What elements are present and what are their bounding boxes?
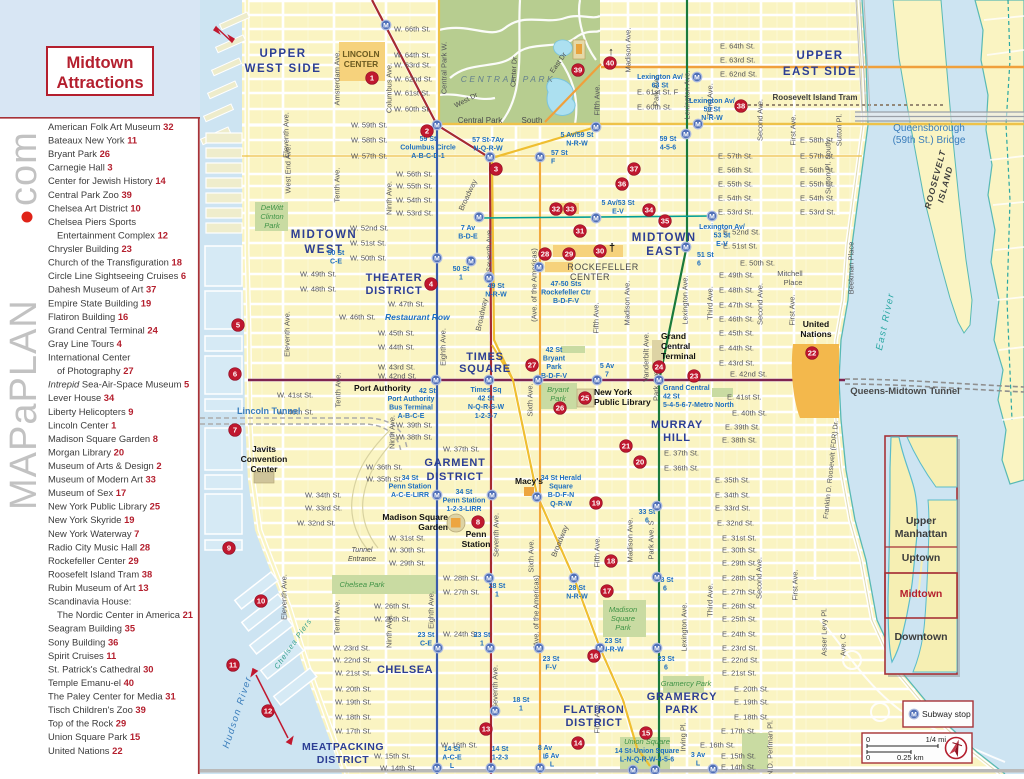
svg-text:Vanderbilt Ave.: Vanderbilt Ave. [642,332,651,382]
svg-text:Manhattan: Manhattan [895,528,948,540]
svg-text:1: 1 [495,592,499,599]
svg-text:E. 25th St.: E. 25th St. [722,615,757,624]
svg-text:Seventh Ave.: Seventh Ave. [485,228,494,272]
svg-text:14 St-Union Square: 14 St-Union Square [615,748,680,755]
svg-text:53 St: 53 St [714,233,731,240]
svg-text:Temple Emanu-el 40: Temple Emanu-el 40 [48,677,134,688]
svg-text:E. 21st St.: E. 21st St. [722,669,757,678]
svg-text:L: L [696,761,701,768]
svg-text:Queens-Midtown Tunnel: Queens-Midtown Tunnel [850,386,960,397]
svg-text:Lincoln Center 1: Lincoln Center 1 [48,419,116,430]
svg-text:Grand Central Terminal 24: Grand Central Terminal 24 [48,324,159,335]
svg-text:E. 30th St.: E. 30th St. [722,546,757,555]
svg-text:M: M [435,646,441,653]
svg-text:Ninth Ave.: Ninth Ave. [385,614,394,648]
svg-text:13: 13 [482,725,490,734]
svg-text:UPPER: UPPER [796,50,843,62]
svg-text:Bryant: Bryant [547,385,570,394]
svg-text:Sutton Pl.: Sutton Pl. [835,114,844,147]
svg-text:M: M [487,646,493,653]
svg-text:Church of the Transfiguration: Church of the Transfiguration 18 [48,257,182,268]
svg-text:E. 31st St.: E. 31st St. [722,534,757,543]
svg-text:E. 57th St.: E. 57th St. [718,152,753,161]
svg-text:4-5-6: 4-5-6 [660,145,676,152]
svg-text:21: 21 [622,442,631,451]
svg-text:Tisch Children's Zoo 39: Tisch Children's Zoo 39 [48,704,146,715]
svg-text:Lincoln Tunnel: Lincoln Tunnel [237,406,300,416]
svg-text:E. 20th St.: E. 20th St. [734,685,769,694]
svg-text:United Nations 22: United Nations 22 [48,745,123,756]
svg-text:W. 45th St.: W. 45th St. [378,329,415,338]
svg-text:Gray Line Tours 4: Gray Line Tours 4 [48,338,123,349]
svg-text:Chelsea Park: Chelsea Park [339,580,385,589]
svg-text:W. 36th St.: W. 36th St. [366,463,403,472]
svg-text:M: M [654,575,660,582]
svg-text:B-D-F-V: B-D-F-V [541,373,567,380]
svg-text:CENTRAL PARK: CENTRAL PARK [461,74,555,84]
svg-text:M: M [630,768,636,775]
svg-text:TIMES: TIMES [466,351,504,363]
svg-text:W. 56th St.: W. 56th St. [396,170,433,179]
svg-text:Intrepid Sea-Air-Space Museum: Intrepid Sea-Air-Space Museum 5 [48,379,189,390]
svg-text:Museum of Arts & Design 2: Museum of Arts & Design 2 [48,460,162,471]
svg-text:7: 7 [605,372,609,379]
svg-text:(59th St.) Bridge: (59th St.) Bridge [893,135,966,146]
svg-text:E. 55th St.: E. 55th St. [718,180,753,189]
svg-text:ROCKEFELLER: ROCKEFELLER [567,262,639,272]
svg-text:E. 46th St.: E. 46th St. [719,315,754,324]
svg-text:M: M [492,709,498,716]
svg-text:E. 32nd St.: E. 32nd St. [717,519,754,528]
svg-text:Carnegie Hall 3: Carnegie Hall 3 [48,162,113,173]
svg-text:Queensborough: Queensborough [893,123,965,134]
svg-text:Penn Station: Penn Station [443,498,486,505]
svg-text:Port Authority: Port Authority [388,396,435,403]
svg-text:6: 6 [645,518,649,525]
svg-text:14: 14 [574,739,583,748]
svg-text:Spirit Cruises 11: Spirit Cruises 11 [48,650,116,661]
svg-text:Morgan Library 20: Morgan Library 20 [48,446,124,457]
svg-text:Gramercy Park: Gramercy Park [661,679,713,688]
svg-text:E. 17th St.: E. 17th St. [721,727,756,736]
svg-text:W. 48th St.: W. 48th St. [300,285,337,294]
svg-text:M: M [534,495,540,502]
svg-text:50 St: 50 St [453,266,470,273]
svg-text:SQUARE: SQUARE [459,363,511,375]
svg-text:Rockefeller Ctr: Rockefeller Ctr [541,290,591,297]
svg-text:DISTRICT: DISTRICT [317,754,370,766]
svg-text:GARMENT: GARMENT [424,457,485,469]
svg-text:Midtown: Midtown [67,54,134,72]
svg-text:18 St: 18 St [513,697,530,704]
svg-text:EAST SIDE: EAST SIDE [783,66,857,78]
svg-text:N-R-W: N-R-W [566,141,588,148]
svg-text:18: 18 [607,557,615,566]
svg-text:39: 39 [574,66,582,75]
svg-text:W. 62nd St.: W. 62nd St. [394,75,433,84]
svg-text:38: 38 [737,102,745,111]
svg-text:E. 22nd St.: E. 22nd St. [722,656,759,665]
svg-text:Square: Square [611,614,635,623]
svg-text:Empire State Building 19: Empire State Building 19 [48,297,151,308]
svg-text:34: 34 [645,206,654,215]
svg-text:Park Ave. S: Park Ave. S [647,520,656,559]
svg-text:40: 40 [606,59,614,68]
svg-text:M: M [593,125,599,132]
svg-text:W. 19th St.: W. 19th St. [335,698,372,707]
svg-text:L-N-Q-R-W-4-5-6: L-N-Q-R-W-4-5-6 [620,757,674,764]
svg-text:0: 0 [866,735,870,744]
svg-text:M: M [434,256,440,263]
svg-text:Upper: Upper [906,515,936,527]
svg-text:The Nordic Center in America 2: The Nordic Center in America 21 [57,609,193,620]
svg-text:MAPaPLAN: MAPaPLAN [3,299,45,510]
svg-text:31: 31 [576,227,585,236]
svg-text:Lexington Ave.: Lexington Ave. [680,602,689,651]
svg-text:M: M [434,493,440,500]
svg-text:W. 28th St.: W. 28th St. [443,574,480,583]
svg-text:Ninth Ave.: Ninth Ave. [388,415,397,449]
svg-text:Bryant: Bryant [543,356,566,363]
svg-text:Ninth Ave.: Ninth Ave. [385,181,394,215]
svg-text:W. 23rd St.: W. 23rd St. [333,644,370,653]
svg-text:47-50 Sts: 47-50 Sts [551,281,582,288]
svg-text:Sutton Pl. South: Sutton Pl. South [824,140,833,194]
svg-text:9: 9 [227,544,231,553]
svg-text:E. 23rd St.: E. 23rd St. [722,644,757,653]
svg-text:LINCOLN: LINCOLN [342,49,379,59]
svg-text:First Ave.: First Ave. [791,569,800,600]
svg-text:Center: Center [251,464,279,474]
svg-text:W. 38th St.: W. 38th St. [396,433,433,442]
svg-text:Tunnel: Tunnel [352,547,373,554]
svg-text:(Ave. of the Americas): (Ave. of the Americas) [530,248,539,322]
svg-text:22: 22 [808,349,816,358]
svg-text:Eleventh Ave.: Eleventh Ave. [283,311,292,357]
svg-text:Fifth Ave.: Fifth Ave. [592,302,601,333]
svg-text:E. 14th St.: E. 14th St. [721,763,756,772]
svg-text:E. 39th St.: E. 39th St. [725,423,760,432]
svg-text:10: 10 [257,597,265,606]
svg-text:B-D-E: B-D-E [458,234,478,241]
svg-text:Radio City Music Hall 28: Radio City Music Hall 28 [48,541,150,552]
svg-text:E. 64th St.: E. 64th St. [720,42,755,51]
svg-text:Entertainment Complex 12: Entertainment Complex 12 [57,230,168,241]
svg-text:Times Sq: Times Sq [471,387,502,394]
svg-text:W. 17th St.: W. 17th St. [335,727,372,736]
svg-text:6: 6 [663,586,667,593]
svg-text:33: 33 [566,205,574,214]
svg-text:Seventh Ave.: Seventh Ave. [492,513,501,557]
svg-text:FLATIRON: FLATIRON [563,704,624,716]
svg-text:New York Waterway 7: New York Waterway 7 [48,528,139,539]
svg-text:E. 18th St.: E. 18th St. [734,713,769,722]
svg-text:Roosefelt Island Tram 38: Roosefelt Island Tram 38 [48,569,152,580]
svg-text:E. 29th St.: E. 29th St. [722,559,757,568]
svg-text:M: M [434,766,440,773]
svg-text:Second Ave.: Second Ave. [756,283,765,325]
svg-text:Port Authority: Port Authority [354,383,411,393]
svg-text:W. 59th St.: W. 59th St. [351,121,388,130]
svg-text:B-D-F-V: B-D-F-V [553,298,579,305]
svg-text:57 St: 57 St [551,150,568,157]
svg-text:Central Park Zoo 39: Central Park Zoo 39 [48,189,132,200]
svg-text:Sixth Ave.: Sixth Ave. [527,539,536,572]
svg-text:35: 35 [661,217,670,226]
svg-text:28: 28 [541,250,549,259]
svg-text:6: 6 [664,665,668,672]
svg-text:L: L [550,762,555,769]
svg-text:N-R-W: N-R-W [566,594,588,601]
svg-text:Rockefeller Center 29: Rockefeller Center 29 [48,555,139,566]
svg-text:W. 18th St.: W. 18th St. [335,713,372,722]
svg-text:23 St: 23 St [543,656,560,663]
svg-text:South: South [522,116,543,125]
svg-text:E. 33rd St.: E. 33rd St. [715,504,750,513]
svg-text:Terminal: Terminal [661,351,696,361]
svg-text:42 St: 42 St [546,347,563,354]
svg-text:Central Park W.: Central Park W. [440,42,449,95]
svg-text:Tenth Ave.: Tenth Ave. [333,168,342,203]
svg-text:Madison: Madison [609,605,637,614]
svg-text:1: 1 [480,641,484,648]
svg-text:E. 43rd St.: E. 43rd St. [719,359,754,368]
svg-text:W. 43rd St.: W. 43rd St. [378,363,415,372]
svg-text:N-R-W: N-R-W [485,292,507,299]
svg-text:E. 54th St.: E. 54th St. [718,194,753,203]
svg-text:HILL: HILL [663,432,691,444]
svg-text:19: 19 [592,499,600,508]
svg-text:N-R-W: N-R-W [602,647,624,654]
svg-text:Entrance: Entrance [348,556,376,563]
svg-text:26: 26 [556,404,564,413]
svg-text:Flatiron Building 16: Flatiron Building 16 [48,311,128,322]
svg-text:1-2-3: 1-2-3 [492,755,508,762]
svg-text:W. 41st St.: W. 41st St. [277,391,313,400]
svg-text:Seagram Building 35: Seagram Building 35 [48,623,135,634]
svg-text:E. 15th St.: E. 15th St. [721,752,756,761]
svg-text:M: M [654,646,660,653]
svg-text:1-2-3-LIRR: 1-2-3-LIRR [446,506,481,513]
svg-text:C-E: C-E [330,259,342,266]
svg-text:M: M [486,276,492,283]
svg-text:M: M [911,712,917,719]
svg-text:Rubin Museum of Art 13: Rubin Museum of Art 13 [48,582,149,593]
svg-text:Columbus Circle: Columbus Circle [400,145,456,152]
svg-text:50 St: 50 St [328,250,345,257]
svg-text:of Photography 27: of Photography 27 [57,365,134,376]
svg-text:E. 38th St.: E. 38th St. [722,436,757,445]
svg-text:Central Park: Central Park [458,116,503,125]
svg-text:Park: Park [546,364,561,371]
svg-text:A-C-E-LIRR: A-C-E-LIRR [391,492,429,499]
svg-text:8 Av: 8 Av [538,745,552,752]
svg-text:New York: New York [594,387,632,397]
svg-text:Central: Central [661,341,690,351]
svg-text:15: 15 [642,729,651,738]
svg-text:F: F [551,159,556,166]
svg-text:11: 11 [229,661,238,670]
svg-text:DeWitt: DeWitt [261,203,284,212]
svg-text:W. 29th St.: W. 29th St. [389,559,426,568]
svg-text:W. 49th St.: W. 49th St. [300,270,337,279]
svg-text:Madison Square Garden 8: Madison Square Garden 8 [48,433,158,444]
svg-text:M: M [683,245,689,252]
svg-text:Circle Line Sightseeing Cruise: Circle Line Sightseeing Cruises 6 [48,270,186,281]
svg-text:E. 42nd St.: E. 42nd St. [730,370,767,379]
svg-text:Roosevelt Island Tram: Roosevelt Island Tram [773,93,858,102]
svg-text:Place: Place [784,278,803,287]
svg-text:5 Av/53 St: 5 Av/53 St [602,200,636,207]
svg-text:Tenth Ave.: Tenth Ave. [333,600,342,635]
svg-text:Mitchell: Mitchell [777,269,803,278]
svg-text:E. 37th St.: E. 37th St. [664,449,699,458]
svg-text:DISTRICT: DISTRICT [426,471,483,483]
svg-text:Beekman Place: Beekman Place [847,242,856,295]
svg-text:6: 6 [233,370,237,379]
svg-text:E. 24th St.: E. 24th St. [722,630,757,639]
svg-text:W. 42nd St.: W. 42nd St. [378,372,417,381]
svg-text:Chrysler Building 23: Chrysler Building 23 [48,243,132,254]
svg-text:W. 50th St.: W. 50th St. [350,254,387,263]
svg-text:28 St: 28 St [489,583,506,590]
svg-text:Amsterdam Ave.: Amsterdam Ave. [333,51,342,106]
svg-text:M: M [536,646,542,653]
svg-text:Uptown: Uptown [902,552,941,564]
svg-text:Lexington Ave.: Lexington Ave. [683,70,692,119]
svg-text:N-Q-R-S-W: N-Q-R-S-W [468,404,505,411]
svg-text:M: M [476,215,482,222]
svg-text:Q-R-W: Q-R-W [550,501,572,508]
svg-text:Eleventh Ave.: Eleventh Ave. [282,112,291,158]
svg-text:0.25 km: 0.25 km [897,753,924,762]
svg-text:W. 57th St.: W. 57th St. [351,152,388,161]
svg-text:17: 17 [603,587,611,596]
svg-text:N-Q-R-W: N-Q-R-W [473,146,503,153]
svg-text:M: M [683,132,689,139]
svg-text:0: 0 [866,753,870,762]
svg-text:Top of the Rock 29: Top of the Rock 29 [48,718,126,729]
svg-text:New York Skyride 19: New York Skyride 19 [48,514,135,525]
svg-text:Lexington Av/: Lexington Av/ [699,224,745,231]
svg-text:M: M [594,378,600,385]
svg-text:32: 32 [552,205,560,214]
svg-text:Clinton: Clinton [260,212,283,221]
svg-text:A-B-C-E: A-B-C-E [398,413,425,420]
svg-text:W. 33rd St.: W. 33rd St. [305,504,342,513]
svg-text:CHELSEA: CHELSEA [377,664,433,676]
svg-text:W. 21st St.: W. 21st St. [335,669,371,678]
svg-text:E. 53rd St.: E. 53rd St. [718,208,753,217]
svg-text:57 St-7Av: 57 St-7Av [472,137,504,144]
svg-text:E. 49th St.: E. 49th St. [719,271,754,280]
svg-text:14 St: 14 St [492,746,509,753]
svg-text:M: M [383,23,389,30]
svg-text:34 St: 34 St [456,489,473,496]
svg-text:M: M [709,214,715,221]
svg-text:Bus Terminal: Bus Terminal [389,405,433,412]
svg-text:M: M [537,155,543,162]
svg-text:W. 35th St.: W. 35th St. [366,475,403,484]
svg-text:1: 1 [519,706,523,713]
svg-text:29: 29 [565,250,573,259]
svg-text:W. 64th St.: W. 64th St. [394,51,431,60]
svg-text:Bateaux New York 11: Bateaux New York 11 [48,135,137,146]
svg-text:Ave. C: Ave. C [839,633,848,656]
svg-text:Eighth Ave.: Eighth Ave. [439,328,448,366]
svg-text:W. 63rd St.: W. 63rd St. [394,61,431,70]
svg-text:Nations: Nations [800,329,831,339]
svg-text:E. 36th St.: E. 36th St. [664,464,699,473]
svg-text:M: M [535,378,541,385]
svg-text:Eighth Ave.: Eighth Ave. [427,591,436,629]
svg-text:34 St: 34 St [402,475,419,482]
svg-text:W. 14th St.: W. 14th St. [380,764,417,773]
svg-text:Garden: Garden [418,522,448,532]
svg-text:M: M [537,766,543,773]
svg-text:M: M [486,378,492,385]
svg-text:N-R-W: N-R-W [701,115,723,122]
svg-text:Asser Levy Pl.: Asser Levy Pl. [820,608,829,656]
svg-text:37: 37 [630,165,638,174]
svg-text:First Ave.: First Ave. [788,294,797,325]
svg-text:Penn: Penn [466,529,487,539]
svg-text:W. 26th St.: W. 26th St. [374,602,411,611]
svg-text:12: 12 [264,707,272,716]
svg-text:36: 36 [618,180,626,189]
svg-text:Grand: Grand [661,331,686,341]
svg-text:Madison Ave.: Madison Ave. [626,518,635,563]
svg-text:51 St: 51 St [697,252,714,259]
svg-text:Javits: Javits [252,444,276,454]
svg-text:Downtown: Downtown [894,631,947,643]
svg-text:Attractions: Attractions [56,74,143,92]
svg-text:6 Av: 6 Av [545,753,559,760]
svg-text:24: 24 [655,363,664,372]
svg-text:E. 48th St.: E. 48th St. [719,286,754,295]
svg-text:M: M [433,378,439,385]
svg-text:M: M [652,768,658,775]
svg-text:3: 3 [494,165,498,174]
svg-text:MIDTOWN: MIDTOWN [291,229,358,241]
svg-text:W. 39th St.: W. 39th St. [396,421,433,430]
svg-text:L: L [450,763,455,770]
svg-text:M: M [654,504,660,511]
svg-text:1-2-3-7: 1-2-3-7 [475,413,498,420]
svg-text:(Ave. of the Americas): (Ave. of the Americas) [532,575,541,649]
svg-text:THEATER: THEATER [366,272,423,284]
svg-text:23 St: 23 St [658,656,675,663]
svg-text:W. 20th St.: W. 20th St. [335,685,372,694]
svg-text:W. 46th St.: W. 46th St. [339,313,376,322]
svg-text:W. 60th St.: W. 60th St. [394,105,431,114]
svg-text:M: M [536,265,542,272]
svg-text:Fifth Ave.: Fifth Ave. [593,536,602,567]
svg-text:United: United [803,319,829,329]
svg-text:MURRAY: MURRAY [651,419,703,431]
svg-text:†: † [609,242,615,254]
svg-text:Lexington Av/: Lexington Av/ [689,98,735,105]
svg-text:Fifth Ave.: Fifth Ave. [593,84,602,115]
svg-text:First Ave.: First Ave. [789,114,798,145]
svg-text:EAST: EAST [646,246,681,258]
svg-text:E. 62nd St.: E. 62nd St. [720,70,757,79]
svg-text:5-4-5-6-7-Metro North: 5-4-5-6-7-Metro North [663,402,734,409]
svg-text:5 Av: 5 Av [600,363,614,370]
svg-text:7 Av: 7 Av [461,225,475,232]
svg-text:DISTRICT: DISTRICT [565,717,622,729]
svg-text:Tenth Ave.: Tenth Ave. [334,373,343,408]
